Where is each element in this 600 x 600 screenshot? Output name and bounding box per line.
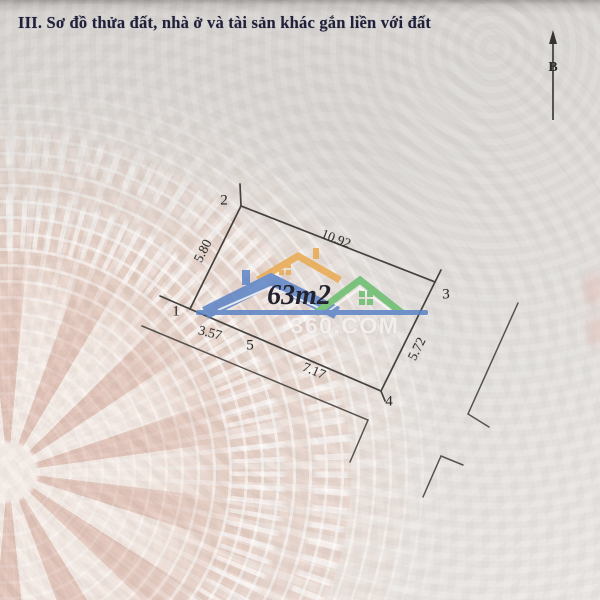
vertex-3-extension bbox=[435, 270, 441, 282]
adjacent-boundary-mark-lower bbox=[423, 456, 463, 497]
parcel-area-label: 63m2 bbox=[267, 280, 331, 312]
adjacent-boundary-line-bottom bbox=[142, 326, 368, 462]
vertex-label-1: 1 bbox=[172, 304, 180, 321]
vertex-label-3: 3 bbox=[442, 287, 450, 304]
adjacent-boundary-line-right bbox=[468, 303, 518, 427]
land-certificate-scan: 360.COM bbox=[0, 0, 600, 600]
blue-chimney-icon bbox=[242, 270, 250, 285]
section-title: III. Sơ đồ thửa đất, nhà ở và tài sản kh… bbox=[18, 13, 431, 33]
vertex-2-tick bbox=[240, 184, 241, 206]
vertex-label-5: 5 bbox=[246, 338, 254, 355]
vertex-label-4: 4 bbox=[385, 394, 393, 411]
vertex-label-2: 2 bbox=[220, 193, 228, 210]
orange-chimney-icon bbox=[313, 248, 319, 259]
north-arrow-head bbox=[549, 30, 557, 44]
north-label: B bbox=[548, 60, 557, 76]
